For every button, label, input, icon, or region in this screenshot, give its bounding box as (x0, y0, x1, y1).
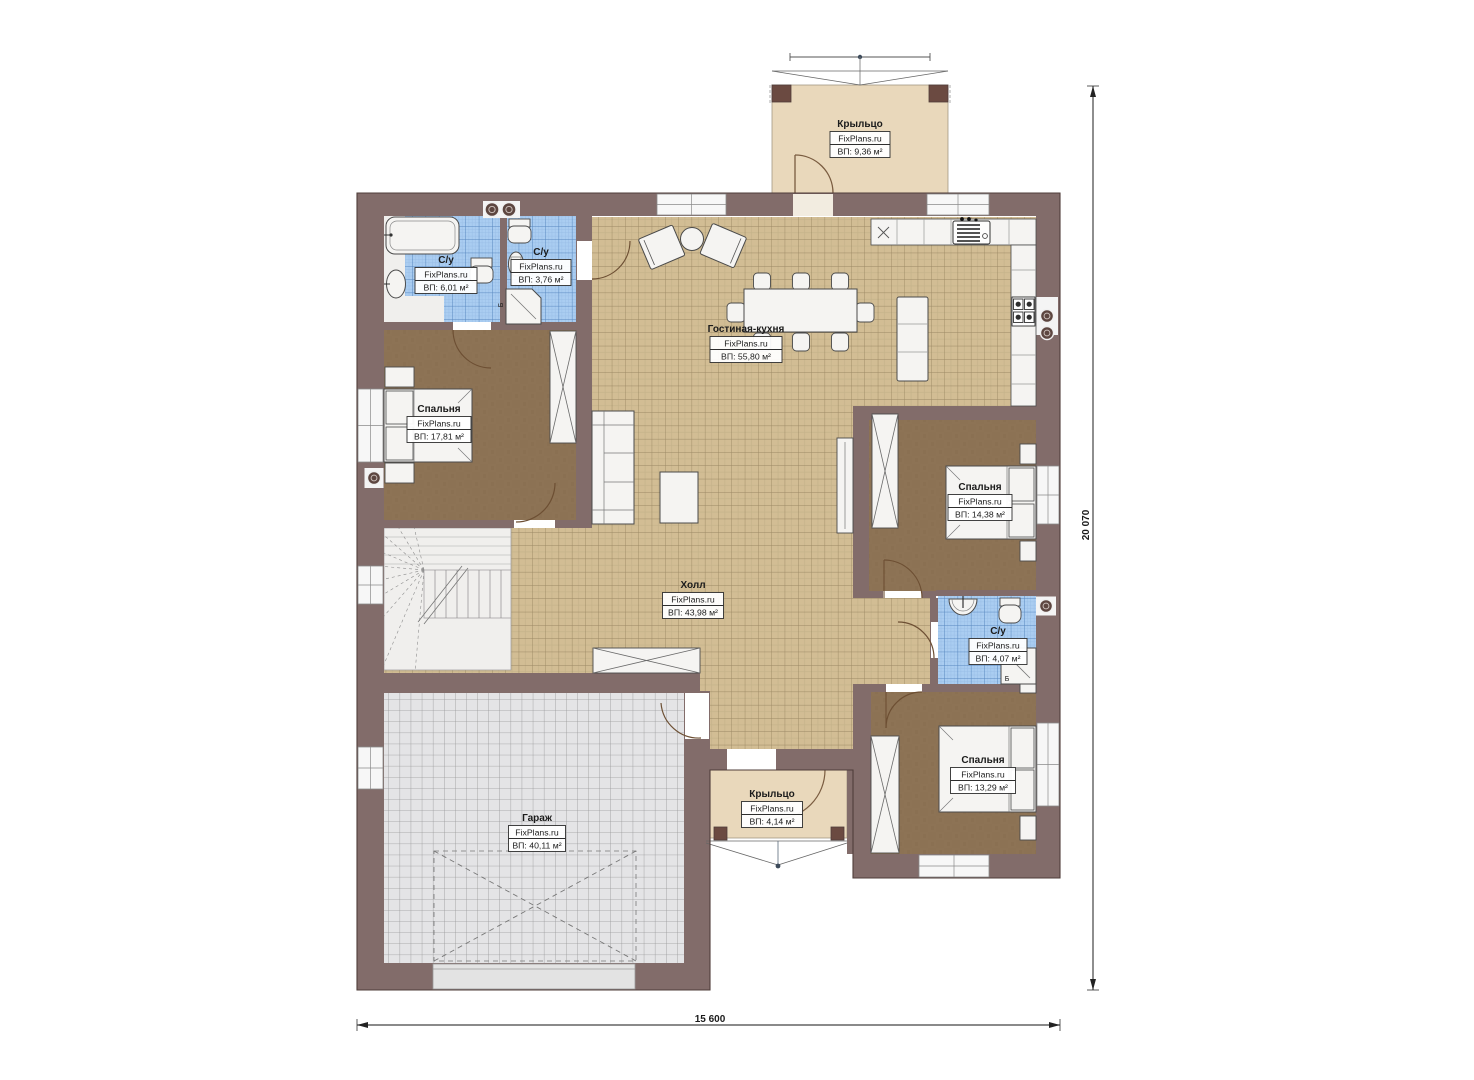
svg-text:Гостиная-кухня: Гостиная-кухня (708, 324, 785, 335)
svg-text:ВП: 9,36 м²: ВП: 9,36 м² (837, 147, 882, 157)
svg-text:ВП: 43,98 м²: ВП: 43,98 м² (668, 608, 718, 618)
svg-text:Гараж: Гараж (522, 813, 553, 824)
svg-text:FixPlans.ru: FixPlans.ru (961, 770, 1005, 780)
svg-text:Холл: Холл (680, 580, 705, 591)
svg-text:ВП: 4,14 м²: ВП: 4,14 м² (749, 817, 794, 827)
svg-text:ВП: 13,29 м²: ВП: 13,29 м² (958, 783, 1008, 793)
svg-text:С/у: С/у (990, 626, 1006, 637)
svg-text:15 600: 15 600 (695, 1014, 726, 1025)
svg-text:ВП: 6,01 м²: ВП: 6,01 м² (423, 283, 468, 293)
svg-text:FixPlans.ru: FixPlans.ru (417, 419, 461, 429)
svg-text:ВП: 14,38 м²: ВП: 14,38 м² (955, 510, 1005, 520)
svg-text:ВП: 55,80 м²: ВП: 55,80 м² (721, 352, 771, 362)
svg-text:ВП: 3,76 м²: ВП: 3,76 м² (518, 275, 563, 285)
svg-text:ВП: 17,81 м²: ВП: 17,81 м² (414, 432, 464, 442)
svg-text:FixPlans.ru: FixPlans.ru (958, 497, 1002, 507)
svg-text:Спальня: Спальня (961, 755, 1004, 766)
svg-text:FixPlans.ru: FixPlans.ru (424, 270, 468, 280)
svg-text:Крыльцо: Крыльцо (837, 119, 883, 130)
svg-text:Крыльцо: Крыльцо (749, 789, 795, 800)
svg-text:С/у: С/у (533, 247, 549, 258)
svg-text:FixPlans.ru: FixPlans.ru (724, 339, 768, 349)
svg-text:FixPlans.ru: FixPlans.ru (519, 262, 563, 272)
svg-text:FixPlans.ru: FixPlans.ru (515, 828, 559, 838)
svg-text:ВП: 40,11 м²: ВП: 40,11 м² (512, 841, 561, 851)
svg-text:Б: Б (498, 302, 505, 307)
svg-text:FixPlans.ru: FixPlans.ru (976, 641, 1020, 651)
svg-text:Б: Б (1005, 676, 1010, 683)
svg-text:ВП: 4,07 м²: ВП: 4,07 м² (975, 654, 1020, 664)
svg-text:С/у: С/у (438, 255, 454, 266)
svg-text:FixPlans.ru: FixPlans.ru (838, 134, 882, 144)
svg-text:Спальня: Спальня (958, 482, 1001, 493)
svg-text:20 070: 20 070 (1081, 509, 1092, 540)
svg-text:FixPlans.ru: FixPlans.ru (750, 804, 794, 814)
svg-text:FixPlans.ru: FixPlans.ru (671, 595, 715, 605)
svg-text:Спальня: Спальня (417, 404, 460, 415)
